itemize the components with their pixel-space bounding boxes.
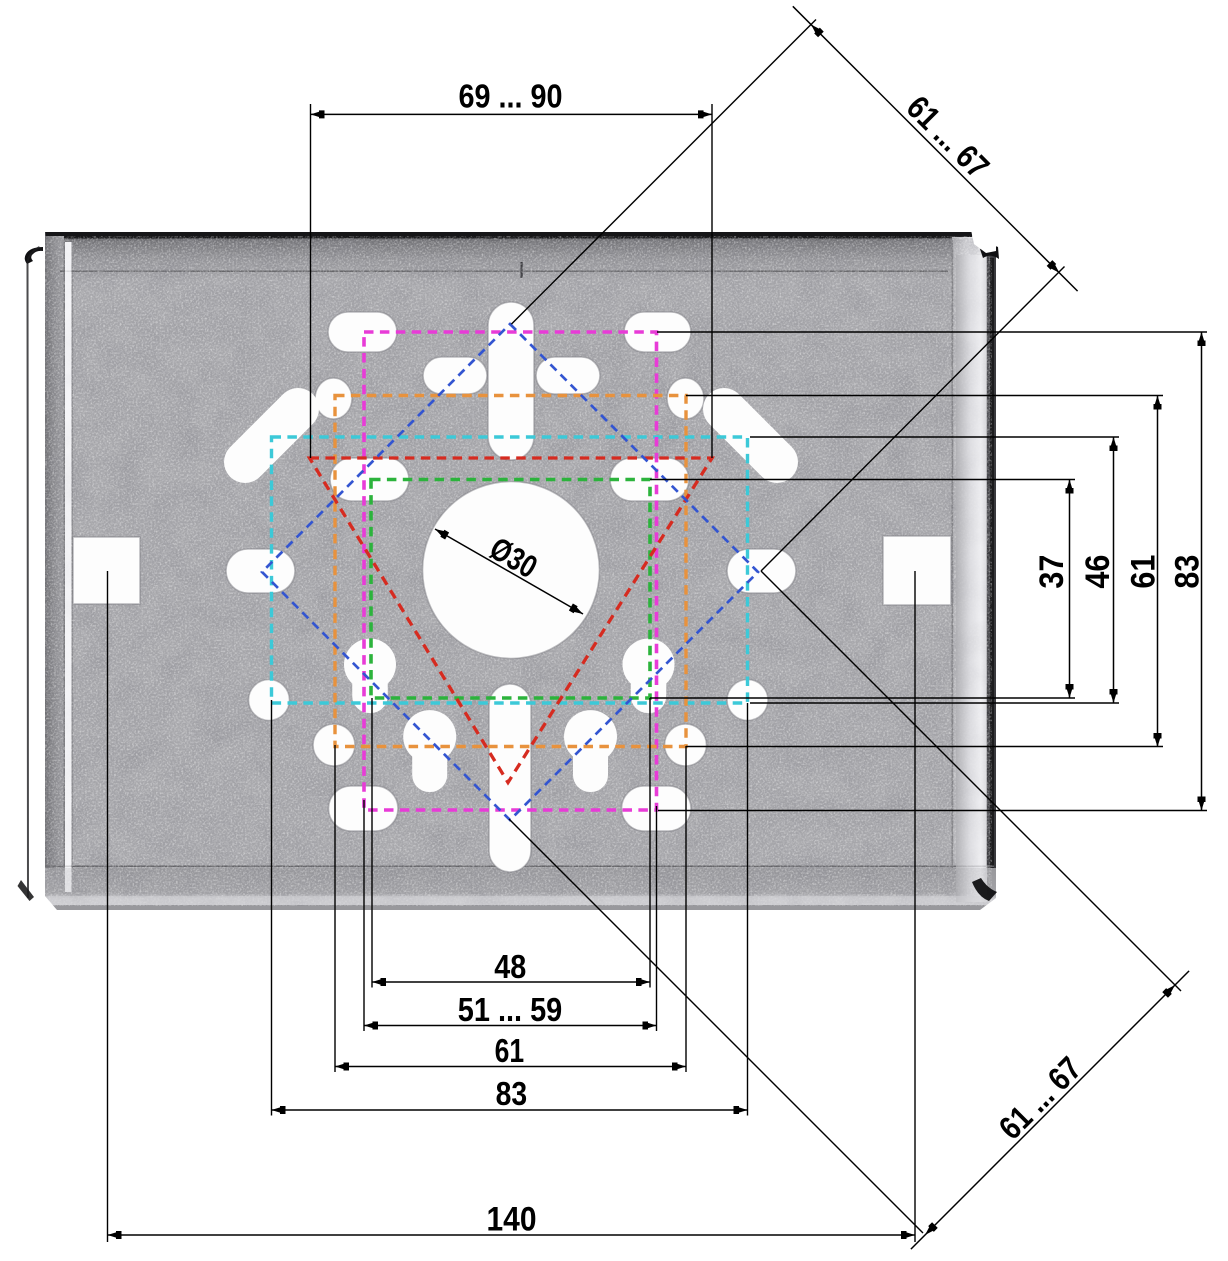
svg-text:46: 46 — [1079, 555, 1117, 589]
svg-text:48: 48 — [494, 948, 526, 985]
svg-text:61: 61 — [495, 1032, 525, 1069]
svg-text:83: 83 — [496, 1075, 528, 1112]
svg-text:51 ... 59: 51 ... 59 — [458, 991, 563, 1028]
svg-text:69 ... 90: 69 ... 90 — [459, 78, 563, 115]
svg-text:37: 37 — [1033, 555, 1071, 589]
svg-text:61: 61 — [1125, 555, 1163, 589]
svg-text:140: 140 — [487, 1201, 537, 1239]
svg-text:83: 83 — [1169, 555, 1207, 589]
